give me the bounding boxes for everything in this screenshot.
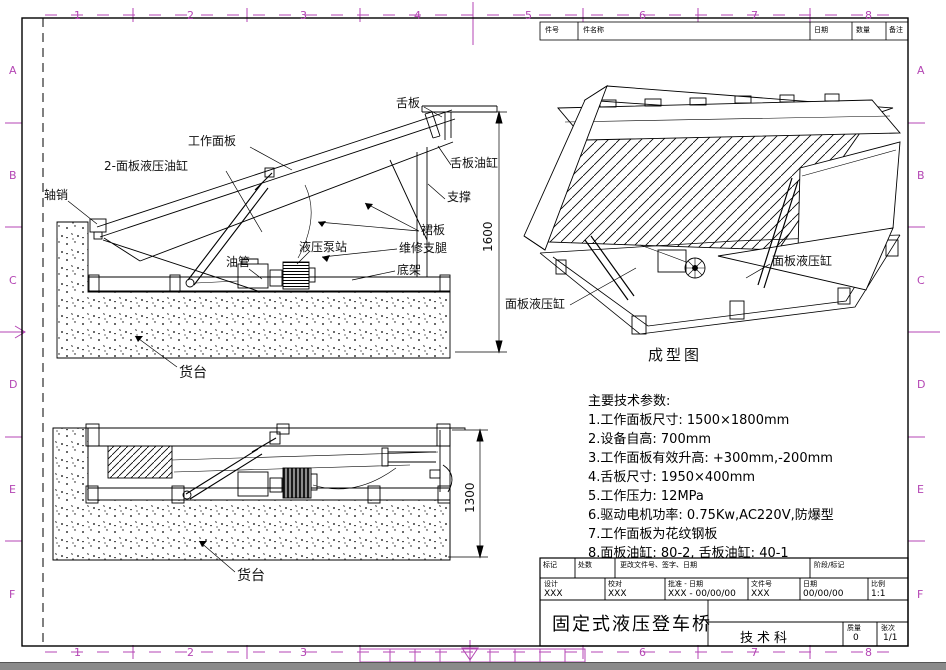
titleblock-field-value: 1:1 [871, 590, 885, 599]
drawing-title: 固定式液压登车桥 [552, 610, 712, 636]
grid-row-label: F [9, 588, 15, 601]
titleblock-rev-header: 阶段/标记 [814, 562, 844, 569]
label-support: 支撑 [447, 191, 471, 204]
label-platform-lower: 货台 [237, 569, 265, 584]
titleblock-field-label: 批准 - 日期 [668, 581, 703, 588]
grid-row-label: F [917, 588, 923, 601]
dimension-1600: 1600 [481, 212, 495, 252]
technical-parameters: 主要技术参数: 1.工作面板尺寸: 1500×1800mm 2.设备自高: 70… [588, 392, 834, 563]
dimension-1300: 1300 [463, 473, 477, 513]
label-panel-cylinder-right: 面板液压缸 [772, 255, 832, 268]
label-panel-cylinder-left: 面板液压缸 [505, 298, 565, 311]
label-base-frame: 底架 [397, 264, 421, 277]
label-panel-cylinders: 2-面板液压油缸 [104, 160, 188, 173]
param-line: 5.工作压力: 12MPa [588, 487, 834, 506]
isometric-view-linework [524, 86, 900, 334]
weight-value: 0 [853, 634, 859, 643]
titleblock-rev-header: 更改文件号、签字、日期 [620, 562, 697, 569]
grid-col-label: 1 [74, 9, 81, 22]
grid-row-label: E [917, 483, 924, 496]
label-lip-plate: 舌板 [396, 97, 420, 110]
sheet-label: 张次 [881, 625, 895, 632]
label-axle-pin: 轴销 [44, 189, 68, 202]
grid-row-label: C [9, 274, 17, 287]
titleblock-field-label: 比例 [871, 581, 885, 588]
grid-col-label: 3 [300, 646, 307, 659]
param-line: 6.驱动电机功率: 0.75Kw,AC220V,防爆型 [588, 506, 834, 525]
param-line: 3.工作面板有效升高: +300mm,-200mm [588, 449, 834, 468]
label-pump-station: 液压泵站 [299, 241, 347, 254]
param-line: 1.工作面板尺寸: 1500×1800mm [588, 411, 834, 430]
grid-row-label: D [9, 378, 17, 391]
label-platform-upper: 货台 [179, 366, 207, 381]
label-oil-pipe: 油管 [226, 256, 250, 269]
titleblock-rev-header: 处数 [578, 562, 592, 569]
param-line: 2.设备自高: 700mm [588, 430, 834, 449]
lower-side-view-linework [53, 424, 488, 572]
grid-row-label: B [9, 169, 17, 182]
grid-row-label: A [917, 64, 925, 77]
titleblock-field-value: XXX [544, 590, 563, 599]
grid-col-label: 8 [865, 9, 872, 22]
parts-strip-header: 件号 [545, 27, 559, 34]
param-line: 4.舌板尺寸: 1950×400mm [588, 468, 834, 487]
sheet-value: 1/1 [883, 634, 897, 643]
grid-col-label: 3 [300, 9, 307, 22]
label-work-panel: 工作面板 [188, 135, 236, 148]
grid-col-label: 4 [414, 9, 421, 22]
grid-col-label: 6 [639, 9, 646, 22]
label-lip-cylinder: 舌板油缸 [450, 157, 498, 170]
drawing-linework [0, 0, 946, 670]
titleblock-field-label: 校对 [608, 581, 622, 588]
weight-label: 质量 [847, 625, 861, 632]
grid-col-label: 6 [639, 646, 646, 659]
grid-col-label: 2 [187, 9, 194, 22]
grid-col-label: 1 [74, 646, 81, 659]
param-line: 7.工作面板为花纹钢板 [588, 525, 834, 544]
department-name: 技术科 [740, 627, 791, 646]
grid-row-label: A [9, 64, 17, 77]
titleblock-field-value: XXX [751, 590, 770, 599]
titleblock-field-label: 设计 [544, 581, 558, 588]
page-bottom-strip [0, 662, 946, 670]
grid-col-label: 7 [751, 646, 758, 659]
titleblock-field-value: 00/00/00 [803, 590, 843, 599]
parts-strip-header: 备注 [889, 27, 903, 34]
grid-col-label: 5 [525, 9, 532, 22]
parts-strip-header: 日期 [814, 27, 828, 34]
engineering-drawing-sheet: 1 2 3 4 5 6 7 8 1 2 3 6 7 8 A B C D E F … [0, 0, 946, 670]
titleblock-rev-header: 标记 [543, 562, 557, 569]
titleblock-field-label: 文件号 [751, 581, 772, 588]
grid-col-label: 2 [187, 646, 194, 659]
titleblock-field-label: 日期 [803, 581, 817, 588]
parts-strip-header: 件名称 [583, 27, 604, 34]
grid-col-label: 8 [865, 646, 872, 659]
grid-row-label: D [917, 378, 925, 391]
parts-strip-header: 数量 [856, 27, 870, 34]
grid-col-label: 7 [751, 9, 758, 22]
grid-row-label: E [9, 483, 16, 496]
iso-view-caption: 成型图 [648, 347, 702, 364]
label-maintenance-legs: 维修支腿 [399, 242, 447, 255]
param-line: 主要技术参数: [588, 392, 834, 411]
grid-row-label: B [917, 169, 925, 182]
titleblock-field-value: XXX [608, 590, 627, 599]
titleblock-field-value: XXX - 00/00/00 [668, 590, 736, 599]
label-skirt-plate: 裙板 [421, 224, 445, 237]
grid-row-label: C [917, 274, 925, 287]
